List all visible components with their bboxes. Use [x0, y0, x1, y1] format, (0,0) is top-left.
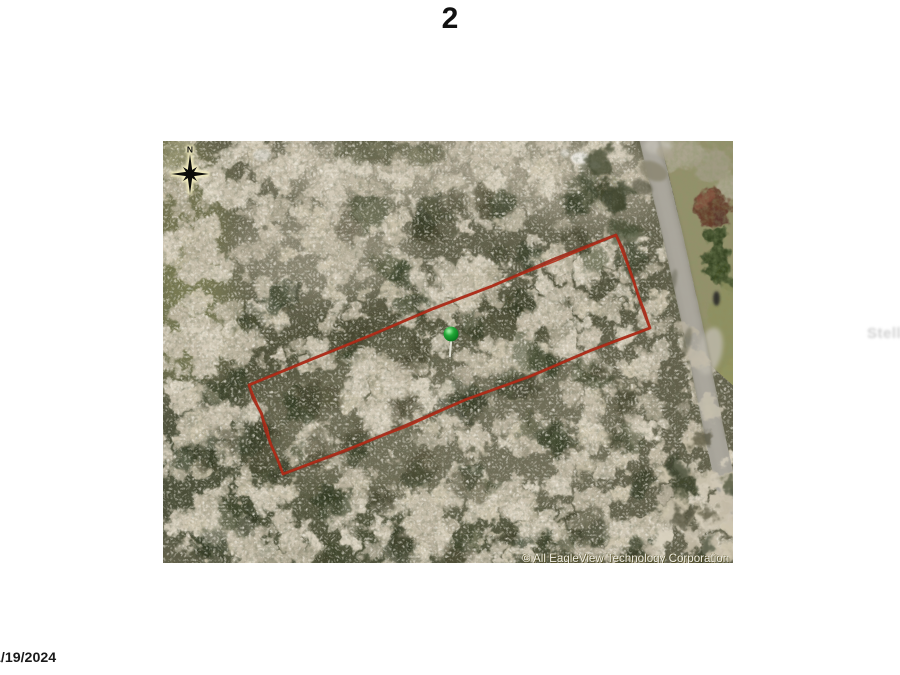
svg-text:N: N [187, 145, 193, 155]
svg-text:© All EagleView Technology Cor: © All EagleView Technology Corporation [522, 552, 729, 563]
